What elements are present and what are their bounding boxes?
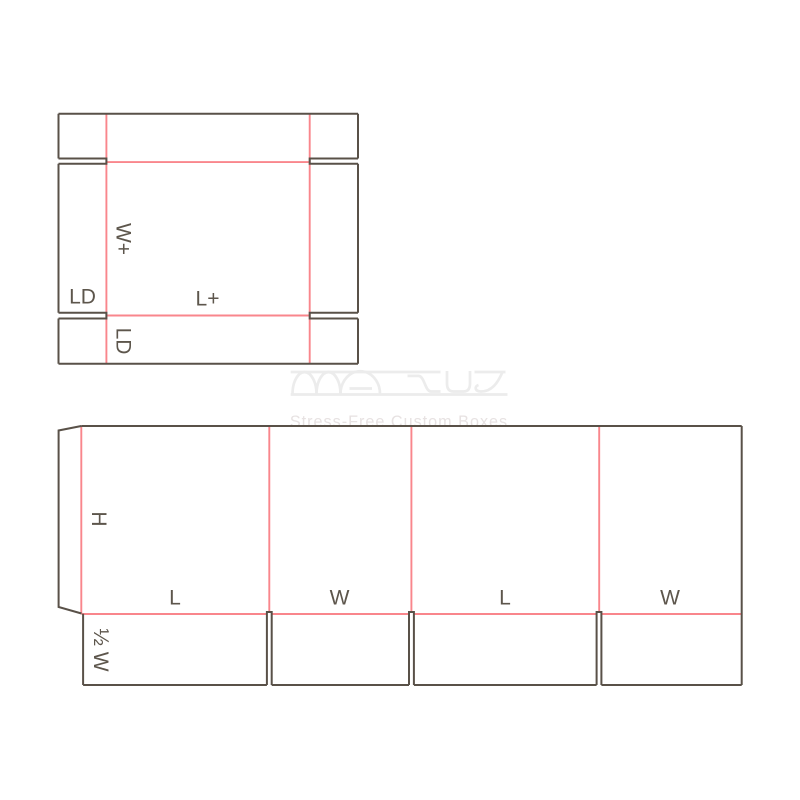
svg-text:L: L xyxy=(499,587,511,610)
svg-text:Stress-Free Custom Boxes: Stress-Free Custom Boxes xyxy=(290,413,508,431)
svg-text:LD: LD xyxy=(112,328,135,355)
svg-text:W: W xyxy=(330,587,350,610)
svg-text:W+: W+ xyxy=(112,223,135,255)
svg-text:W: W xyxy=(660,587,680,610)
svg-text:H: H xyxy=(87,511,110,526)
svg-text:L+: L+ xyxy=(196,288,220,311)
svg-text:½ W: ½ W xyxy=(89,628,112,671)
svg-text:L: L xyxy=(169,587,181,610)
svg-text:LD: LD xyxy=(69,286,96,309)
